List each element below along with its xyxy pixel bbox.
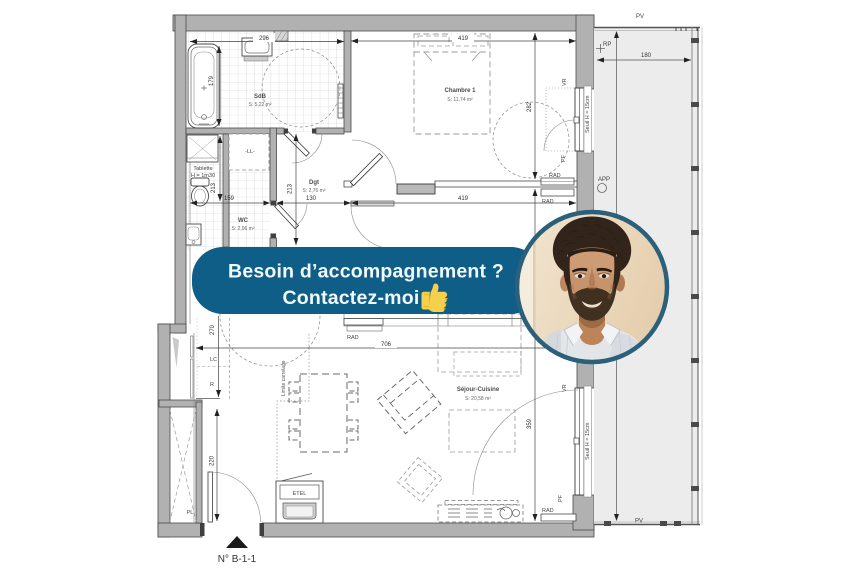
svg-text:419: 419	[458, 36, 469, 42]
svg-text:PF: PF	[558, 494, 564, 502]
svg-text:Besoin d’accompagnement ?: Besoin d’accompagnement ?	[228, 261, 504, 283]
svg-text:S: 2,96 m²: S: 2,96 m²	[231, 226, 254, 232]
svg-text:ETEL: ETEL	[293, 491, 307, 497]
svg-text:Limite carrelage: Limite carrelage	[281, 360, 287, 396]
svg-text:Seuil H = 15cm: Seuil H = 15cm	[585, 422, 591, 460]
svg-text:270: 270	[210, 324, 216, 335]
svg-text:RAD: RAD	[542, 199, 554, 205]
svg-text:LC: LC	[210, 357, 217, 363]
svg-text:213: 213	[211, 182, 217, 193]
svg-text:WC: WC	[238, 218, 249, 224]
svg-text:RP: RP	[603, 42, 611, 48]
svg-text:Dgt: Dgt	[309, 180, 319, 186]
svg-text:N° B-1-1: N° B-1-1	[218, 554, 257, 565]
svg-text:PF: PF	[561, 154, 567, 162]
svg-text:RAD: RAD	[347, 335, 359, 341]
svg-text:296: 296	[259, 36, 270, 42]
svg-text:220: 220	[210, 455, 216, 466]
svg-text:282: 282	[527, 101, 533, 112]
svg-text:PV: PV	[636, 14, 644, 20]
svg-text:130: 130	[306, 196, 317, 202]
svg-text:Chambre 1: Chambre 1	[444, 88, 476, 94]
svg-text:PL: PL	[187, 510, 194, 516]
svg-text:706: 706	[381, 342, 392, 348]
svg-text:179: 179	[209, 75, 215, 86]
svg-text:Contactez-moi: Contactez-moi	[283, 287, 420, 309]
svg-text:359: 359	[527, 418, 533, 429]
svg-text:159: 159	[224, 196, 235, 202]
svg-text:Tablette: Tablette	[193, 166, 212, 172]
svg-text:213: 213	[288, 183, 294, 194]
svg-text:SdB: SdB	[254, 94, 267, 100]
svg-text:S: 20,58 m²: S: 20,58 m²	[465, 396, 491, 402]
svg-text:180: 180	[641, 53, 652, 59]
svg-text:S: 5,22 m²: S: 5,22 m²	[248, 102, 271, 108]
svg-text:Seuil H = 15cm: Seuil H = 15cm	[585, 95, 591, 133]
svg-text:RAD: RAD	[542, 508, 554, 514]
svg-text:APP: APP	[598, 177, 610, 183]
svg-text:R: R	[210, 382, 214, 388]
svg-text:S: 11,74 m²: S: 11,74 m²	[447, 97, 473, 103]
svg-text:PV: PV	[635, 519, 643, 525]
svg-text:S: 2,76 m²: S: 2,76 m²	[302, 188, 325, 194]
svg-text:Séjour-Cuisine: Séjour-Cuisine	[457, 387, 500, 393]
svg-text:-LL-: -LL-	[245, 149, 255, 155]
svg-text:419: 419	[458, 196, 469, 202]
svg-text:VR: VR	[562, 78, 568, 86]
